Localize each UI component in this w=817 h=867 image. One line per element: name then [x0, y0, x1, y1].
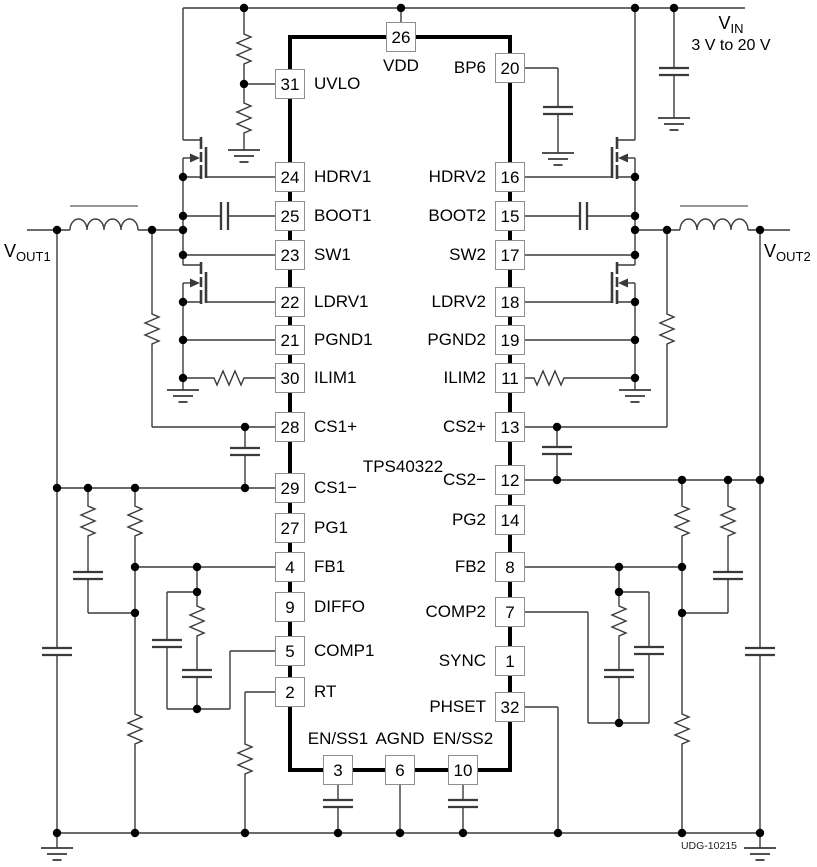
- junction-dot: [678, 563, 686, 571]
- resistor: [145, 308, 159, 350]
- vin-symbol: V: [718, 13, 730, 33]
- resistor: [660, 308, 674, 350]
- vin-range: 3 V to 20 V: [676, 37, 786, 55]
- pin-8-box: 8: [495, 552, 525, 582]
- junction-dot: [193, 588, 201, 596]
- junction-dot: [179, 173, 187, 181]
- junction-dot: [631, 374, 639, 382]
- vout2-label: VOUT2: [764, 241, 811, 265]
- vout1-label: VOUT1: [4, 241, 51, 265]
- junction-dot: [193, 705, 201, 713]
- mosfet-arrow: [618, 279, 628, 288]
- junction-dot: [756, 476, 764, 484]
- pin-15-box: 15: [495, 201, 525, 231]
- junction-dot: [53, 226, 61, 234]
- pin-1-box: 1: [495, 646, 525, 676]
- junction-dot: [53, 829, 61, 837]
- pin-24-box: 24: [275, 162, 305, 192]
- resistor: [237, 96, 251, 140]
- pin-14-label: PG2: [346, 511, 486, 529]
- resistor: [530, 371, 568, 385]
- junction-dot: [179, 212, 187, 220]
- resistor: [675, 710, 689, 748]
- junction-dot: [756, 829, 764, 837]
- junction-dot: [179, 336, 187, 344]
- junction-dot: [663, 226, 671, 234]
- junction-dot: [84, 484, 92, 492]
- doc-id: UDG-10215: [627, 840, 737, 852]
- vin-subscript: IN: [731, 21, 744, 36]
- pin-6-box: 6: [385, 755, 415, 785]
- vin-label: VIN 3 V to 20 V: [676, 13, 786, 56]
- inductor: [680, 219, 748, 230]
- junction-dot: [131, 484, 139, 492]
- pin-4-box: 4: [275, 552, 305, 582]
- resistor: [210, 371, 248, 385]
- junction-dot: [241, 829, 249, 837]
- pin-5-box: 5: [275, 636, 305, 666]
- junction-dot: [179, 226, 187, 234]
- pin-11-label: ILIM2: [346, 369, 486, 387]
- pin-31-label: UVLO: [314, 75, 360, 93]
- resistor: [190, 602, 204, 640]
- junction-dot: [241, 484, 249, 492]
- vout2-symbol: V: [764, 241, 776, 261]
- pin-32-label: PHSET: [346, 698, 486, 716]
- pin-17-box: 17: [495, 240, 525, 270]
- pin-10-box: 10: [448, 755, 478, 785]
- junction-dot: [131, 563, 139, 571]
- pin-8-label: FB2: [346, 558, 486, 576]
- junction-dot: [615, 719, 623, 727]
- pin-18-label: LDRV2: [346, 293, 486, 311]
- junction-dot: [148, 226, 156, 234]
- vout1-subscript: OUT1: [16, 249, 51, 264]
- junction-dot: [396, 829, 404, 837]
- resistor: [128, 502, 142, 540]
- junction-dot: [631, 173, 639, 181]
- mosfet-arrow: [618, 154, 628, 163]
- junction-dot: [397, 4, 405, 12]
- junction-dot: [615, 563, 623, 571]
- pin-7-label: COMP2: [346, 603, 486, 621]
- pin-23-box: 23: [275, 240, 305, 270]
- pin-7-box: 7: [495, 597, 525, 627]
- junction-dot: [631, 212, 639, 220]
- pin-20-box: 20: [495, 53, 525, 83]
- pin-18-box: 18: [495, 287, 525, 317]
- pin-13-label: CS2+: [346, 418, 486, 436]
- pin-2-label: RT: [314, 683, 336, 701]
- pin-9-box: 9: [275, 592, 305, 622]
- junction-dot: [724, 476, 732, 484]
- pin-28-box: 28: [275, 412, 305, 442]
- pin-19-label: PGND2: [346, 331, 486, 349]
- junction-dot: [678, 829, 686, 837]
- junction-dot: [678, 476, 686, 484]
- pin-14-box: 14: [495, 505, 525, 535]
- resistor: [238, 740, 252, 778]
- vout1-symbol: V: [4, 241, 16, 261]
- junction-dot: [631, 298, 639, 306]
- junction-dot: [193, 563, 201, 571]
- resistor: [81, 502, 95, 540]
- pin-13-box: 13: [495, 412, 525, 442]
- junction-dot: [241, 423, 249, 431]
- junction-dot: [459, 829, 467, 837]
- junction-dot: [334, 829, 342, 837]
- junction-dot: [240, 4, 248, 12]
- mosfet-arrow: [190, 154, 200, 163]
- pin-16-label: HDRV2: [346, 168, 486, 186]
- resistor: [612, 602, 626, 640]
- pin-27-label: PG1: [314, 519, 348, 537]
- junction-dot: [131, 609, 139, 617]
- pin-19-box: 19: [495, 325, 525, 355]
- inductor: [70, 219, 138, 230]
- junction-dot: [756, 226, 764, 234]
- pin-32-box: 32: [495, 692, 525, 722]
- pin-22-box: 22: [275, 287, 305, 317]
- pin-30-box: 30: [275, 363, 305, 393]
- pin-17-label: SW2: [346, 246, 486, 264]
- junction-dot: [631, 251, 639, 259]
- pin-31-box: 31: [275, 69, 305, 99]
- junction-dot: [678, 609, 686, 617]
- pin-26-box: 26: [386, 22, 416, 52]
- junction-dot: [631, 226, 639, 234]
- pin-16-box: 16: [495, 162, 525, 192]
- junction-dot: [615, 588, 623, 596]
- ic-part-number: TPS40322: [342, 457, 464, 477]
- pin-11-box: 11: [495, 363, 525, 393]
- pin-27-box: 27: [275, 513, 305, 543]
- mosfet-arrow: [190, 279, 200, 288]
- pin-20-label: BP6: [346, 59, 486, 77]
- vout2-subscript: OUT2: [776, 249, 811, 264]
- junction-dot: [53, 484, 61, 492]
- pin-21-box: 21: [275, 325, 305, 355]
- junction-dot: [131, 829, 139, 837]
- junction-dot: [553, 423, 561, 431]
- pin-3-box: 3: [323, 755, 353, 785]
- junction-dot: [179, 374, 187, 382]
- pin-4-label: FB1: [314, 558, 345, 576]
- pin-15-label: BOOT2: [346, 207, 486, 225]
- schematic-page: 26VDD31UVLO24HDRV125BOOT123SW122LDRV121P…: [0, 0, 817, 867]
- junction-dot: [179, 298, 187, 306]
- pin-2-box: 2: [275, 677, 305, 707]
- pin-12-box: 12: [495, 465, 525, 495]
- resistor: [128, 710, 142, 748]
- resistor: [237, 28, 251, 70]
- pin-25-box: 25: [275, 201, 305, 231]
- junction-dot: [631, 336, 639, 344]
- junction-dot: [179, 251, 187, 259]
- resistor: [721, 502, 735, 540]
- junction-dot: [240, 80, 248, 88]
- junction-dot: [553, 476, 561, 484]
- junction-dot: [631, 4, 639, 12]
- resistor: [675, 502, 689, 540]
- junction-dot: [554, 829, 562, 837]
- pin-10-label: EN/SS2: [415, 730, 511, 748]
- pin-29-box: 29: [275, 473, 305, 503]
- junction-dot: [670, 4, 678, 12]
- pin-1-label: SYNC: [346, 652, 486, 670]
